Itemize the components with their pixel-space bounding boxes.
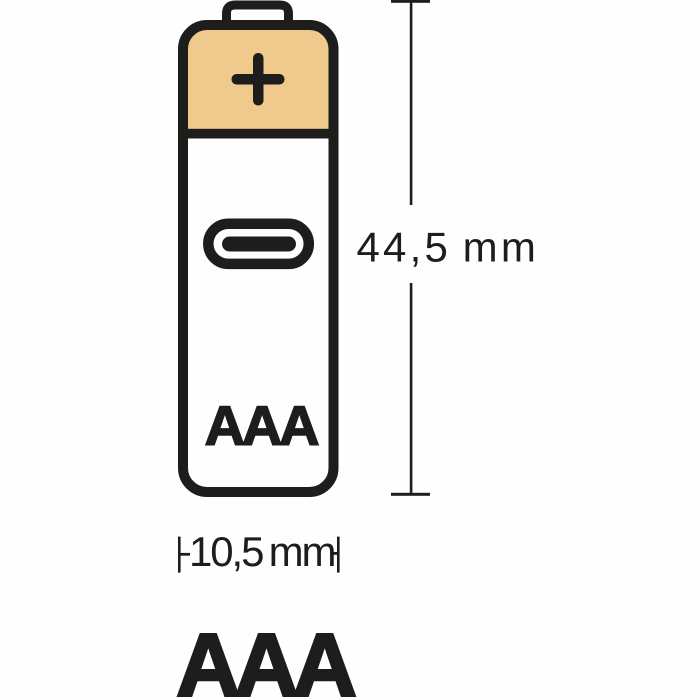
svg-text:AAA: AAA	[176, 615, 355, 700]
svg-text:44,5 mm: 44,5 mm	[357, 224, 540, 271]
svg-text:10,5 mm: 10,5 mm	[189, 528, 335, 575]
svg-text:AAA: AAA	[205, 394, 318, 457]
